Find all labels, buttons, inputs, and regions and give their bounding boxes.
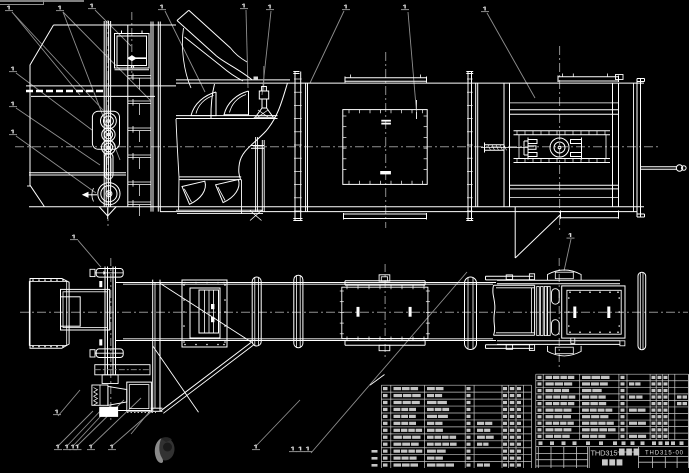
- svg-text:THD315: THD315: [591, 449, 618, 458]
- svg-text:THD315-00: THD315-00: [645, 451, 684, 457]
